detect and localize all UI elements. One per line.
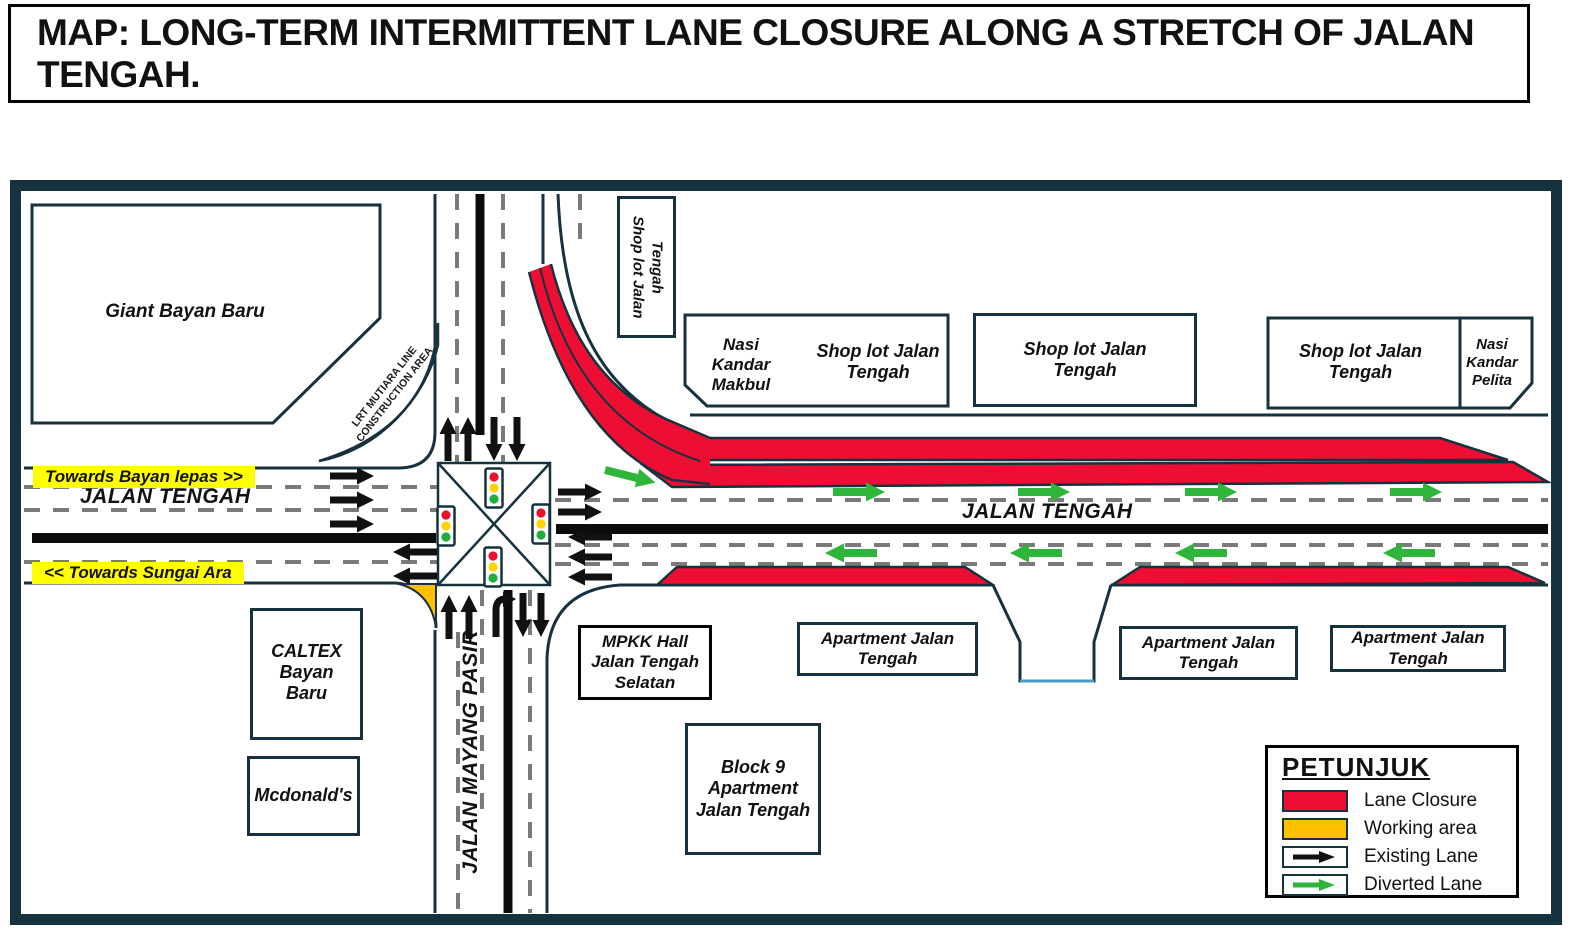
traffic-light-east-icon [533, 505, 550, 544]
legend-item-lane-closure: Lane Closure [1282, 787, 1504, 815]
legend-item-diverted-lane: Diverted Lane [1282, 871, 1504, 899]
page-title: MAP: LONG-TERM INTERMITTENT LANE CLOSURE… [37, 12, 1527, 96]
mcdonalds-box: Mcdonald's [247, 756, 360, 836]
shoplot-vertical-box: Shop lot Jalan Tengah [617, 196, 676, 338]
working-area-swatch-icon [1282, 818, 1348, 840]
traffic-light-south-icon [485, 548, 502, 587]
legend-title: PETUNJUK [1282, 752, 1504, 783]
apartment-1-box: Apartment Jalan Tengah [797, 622, 978, 676]
traffic-map-page: MAP: LONG-TERM INTERMITTENT LANE CLOSURE… [0, 0, 1572, 936]
mpkk-hall-box: MPKK Hall Jalan Tengah Selatan [578, 625, 712, 700]
shoplot-b-box: Shop lot Jalan Tengah [973, 313, 1197, 407]
apartment-2-box: Apartment Jalan Tengah [1119, 626, 1298, 680]
giant-bayan-baru-label: Giant Bayan Baru [100, 296, 270, 328]
traffic-light-west-icon [438, 507, 455, 546]
nasi-kandar-makbul-label: Nasi Kandar Makbul [700, 328, 782, 402]
shoplot-a-label: Shop lot Jalan Tengah [798, 334, 958, 390]
block9-box: Block 9 Apartment Jalan Tengah [685, 723, 821, 855]
towards-sungai-ara-label: << Towards Sungai Ara [32, 562, 244, 584]
shoplot-c-label: Shop lot Jalan Tengah [1278, 334, 1443, 390]
diverted-lane-arrow-icon [1282, 874, 1348, 896]
shoplot-vertical-label: Shop lot Jalan Tengah [624, 203, 670, 331]
existing-lane-arrow-icon [1282, 846, 1348, 868]
apartment-3-box: Apartment Jalan Tengah [1330, 625, 1506, 672]
nasi-kandar-pelita-label: Nasi Kandar Pelita [1460, 328, 1524, 398]
legend-item-existing-lane: Existing Lane [1282, 843, 1504, 871]
jalan-tengah-west-label: JALAN TENGAH [80, 485, 251, 509]
traffic-light-north-icon [486, 469, 503, 508]
legend-item-working-area: Working area [1282, 815, 1504, 843]
lane-closure-swatch-icon [1282, 790, 1348, 812]
legend: PETUNJUK Lane Closure Working area Exist… [1265, 745, 1519, 898]
jalan-mayang-pasir-label: JALAN MAYANG PASIR [457, 637, 485, 867]
jalan-tengah-east-label: JALAN TENGAH [962, 500, 1133, 524]
title-bar: MAP: LONG-TERM INTERMITTENT LANE CLOSURE… [8, 4, 1530, 103]
caltex-box: CALTEX Bayan Baru [250, 608, 363, 740]
